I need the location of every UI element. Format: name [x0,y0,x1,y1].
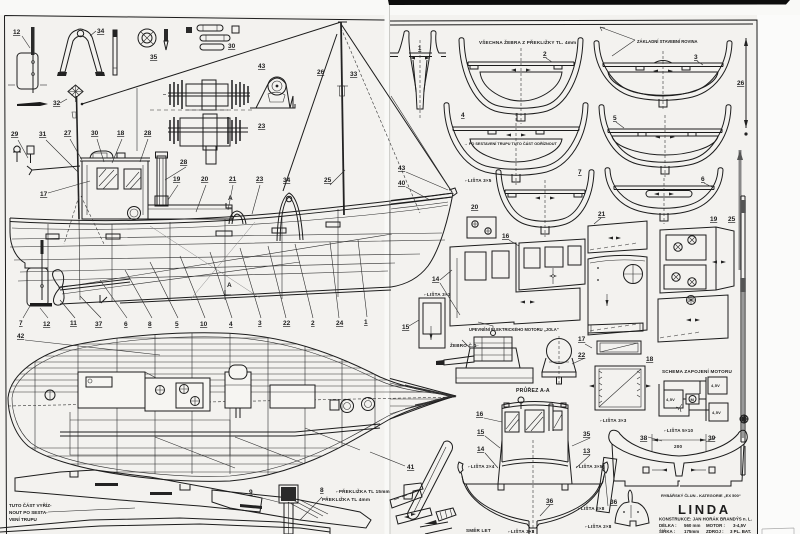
svg-text:14: 14 [477,446,485,453]
svg-text:RYBÁŘSKÝ ČLUN - KATEGORIE „EX: RYBÁŘSKÝ ČLUN - KATEGORIE „EX 500“ [661,493,741,498]
svg-text:26: 26 [737,80,745,87]
svg-text:⌐LIŠTA 2×8: ⌐LIŠTA 2×8 [578,504,605,511]
svg-text:VŠECHNA ŽEBRA Z PŘEKLIŽKY TL.: VŠECHNA ŽEBRA Z PŘEKLIŽKY TL. 4mm [479,38,576,45]
svg-text:32: 32 [53,100,61,107]
svg-text:18: 18 [117,130,125,137]
svg-text:15: 15 [477,429,485,436]
svg-text:24: 24 [336,320,344,327]
svg-text:25: 25 [324,177,332,184]
svg-text:NOUT PO SESTA-: NOUT PO SESTA- [9,510,48,515]
svg-text:13: 13 [583,448,591,455]
svg-text:25: 25 [728,216,736,223]
svg-text:UPEVNĚNÍ ELEKTRICKÉHO MOTORU „: UPEVNĚNÍ ELEKTRICKÉHO MOTORU „JOLA“ [469,327,559,332]
svg-text:38: 38 [640,435,648,442]
svg-text:SCHEMA ZAPOJENÍ MOTORU: SCHEMA ZAPOJENÍ MOTORU [662,367,732,374]
svg-text:10: 10 [200,321,208,328]
svg-text:ŽEBRO Č.4⌐: ŽEBRO Č.4⌐ [450,341,479,348]
svg-text:20: 20 [201,176,209,183]
svg-text:16: 16 [502,233,510,240]
svg-text:14: 14 [432,276,440,283]
svg-text:28: 28 [180,159,188,166]
svg-text:M: M [691,397,695,402]
svg-text:17: 17 [578,336,586,343]
svg-text:8: 8 [320,487,324,494]
svg-text:5: 5 [613,115,617,122]
svg-text:23: 23 [258,123,266,130]
svg-text:15: 15 [402,324,410,331]
svg-text:4,5V: 4,5V [666,397,675,402]
svg-text:⌐LIŠTA 3×3: ⌐LIŠTA 3×3 [424,290,451,297]
svg-text:PŘEKLIŽKA TL 4mm: PŘEKLIŽKA TL 4mm [322,495,370,502]
svg-text:17: 17 [40,191,48,198]
svg-text:21: 21 [229,176,237,183]
svg-text:3-4,5V: 3-4,5V [733,523,746,528]
svg-text:3: 3 [258,320,262,327]
svg-text:43: 43 [258,63,266,70]
svg-text:21: 21 [598,211,606,218]
svg-text:11: 11 [70,320,77,327]
svg-text:ZDROJ :: ZDROJ : [706,529,724,534]
svg-text:⌐PŘEKLIŽKA TL 15mm: ⌐PŘEKLIŽKA TL 15mm [336,487,390,494]
svg-text:3 PL. BAT.: 3 PL. BAT. [730,529,751,534]
svg-text:16: 16 [476,411,484,418]
svg-text:35: 35 [150,54,158,61]
svg-text:3: 3 [694,54,698,61]
svg-text:12: 12 [43,321,51,328]
svg-text:⌐LIŠTA 3×8: ⌐LIŠTA 3×8 [508,527,535,534]
svg-text:28: 28 [144,130,152,137]
svg-text:4,5V: 4,5V [711,383,720,388]
svg-text:34: 34 [97,28,105,35]
svg-text:2: 2 [543,51,547,58]
svg-text:23: 23 [256,176,264,183]
svg-text:12: 12 [13,29,21,36]
svg-text:5: 5 [175,321,179,328]
svg-text:ŠÍŘKA :: ŠÍŘKA : [659,529,676,534]
svg-text:29: 29 [11,131,19,138]
svg-text:ZÁKLADNÍ STAVEBNÍ ROVINA: ZÁKLADNÍ STAVEBNÍ ROVINA [637,39,698,44]
svg-text:35: 35 [583,431,591,438]
svg-text:PRŮŘEZ A-A: PRŮŘEZ A-A [516,386,550,394]
svg-text:200: 200 [674,444,683,449]
svg-text:7: 7 [578,169,582,176]
svg-text:33: 33 [350,71,358,78]
svg-text:⌐LIŠTA 3×5: ⌐LIŠTA 3×5 [465,176,492,183]
svg-text:27: 27 [64,130,72,137]
svg-text:6: 6 [124,321,128,328]
svg-text:⌐LIŠTA 2×8: ⌐LIŠTA 2×8 [585,522,612,529]
svg-text:⌐LIŠTA 3×5: ⌐LIŠTA 3×5 [576,462,603,469]
svg-text:4: 4 [461,112,465,119]
svg-text:A: A [227,282,232,289]
svg-text:19: 19 [710,216,718,223]
svg-text:36: 36 [546,498,554,505]
svg-text:7: 7 [19,320,23,327]
svg-text:DÉLKA :: DÉLKA : [659,523,677,528]
svg-text:TUTO ČÁST VYŘÍZ-: TUTO ČÁST VYŘÍZ- [9,501,52,508]
svg-text:KONSTRUKCE: JAN HORÁK BRANDÝS: KONSTRUKCE: JAN HORÁK BRANDÝS n. L. [659,517,752,522]
svg-text:40: 40 [398,180,406,187]
svg-text:4: 4 [229,321,233,328]
svg-text:⌐LIŠTA 2×4: ⌐LIŠTA 2×4 [468,462,495,469]
svg-text:31: 31 [39,131,47,138]
svg-text:8: 8 [148,321,152,328]
svg-text:VENÍ TRUPU: VENÍ TRUPU [9,515,38,522]
svg-text:2: 2 [311,320,315,327]
svg-text:34: 34 [283,177,291,184]
svg-text:19: 19 [173,176,181,183]
svg-text:20: 20 [471,204,479,211]
svg-text:26: 26 [317,69,325,76]
svg-text:→ PO SESTAVENÍ TRUPU TUTO ČÁST: → PO SESTAVENÍ TRUPU TUTO ČÁST ODŘÍZNOUT [464,141,557,146]
svg-text:9: 9 [249,489,253,496]
svg-text:22: 22 [283,320,291,327]
svg-text:560 mm: 560 mm [684,523,700,528]
svg-text:43: 43 [398,165,406,172]
svg-text:39: 39 [708,435,716,442]
svg-text:30: 30 [228,43,236,50]
svg-text:30: 30 [91,130,99,137]
svg-text:MOTOR :: MOTOR : [706,523,725,528]
svg-text:4,5V: 4,5V [712,410,721,415]
svg-text:41: 41 [407,464,415,471]
svg-text:37: 37 [95,321,103,328]
svg-text:175mm: 175mm [684,529,699,534]
svg-text:42: 42 [17,333,25,340]
svg-text:⌐LIŠTA 5×10: ⌐LIŠTA 5×10 [664,426,694,433]
svg-text:1: 1 [364,319,368,326]
svg-text:SMĚR LET: SMĚR LET [466,526,491,533]
svg-text:6: 6 [701,176,705,183]
svg-text:LINDA: LINDA [678,502,731,517]
svg-text:18: 18 [646,356,654,363]
svg-text:⌐LIŠTA 3×3: ⌐LIŠTA 3×3 [600,416,627,423]
